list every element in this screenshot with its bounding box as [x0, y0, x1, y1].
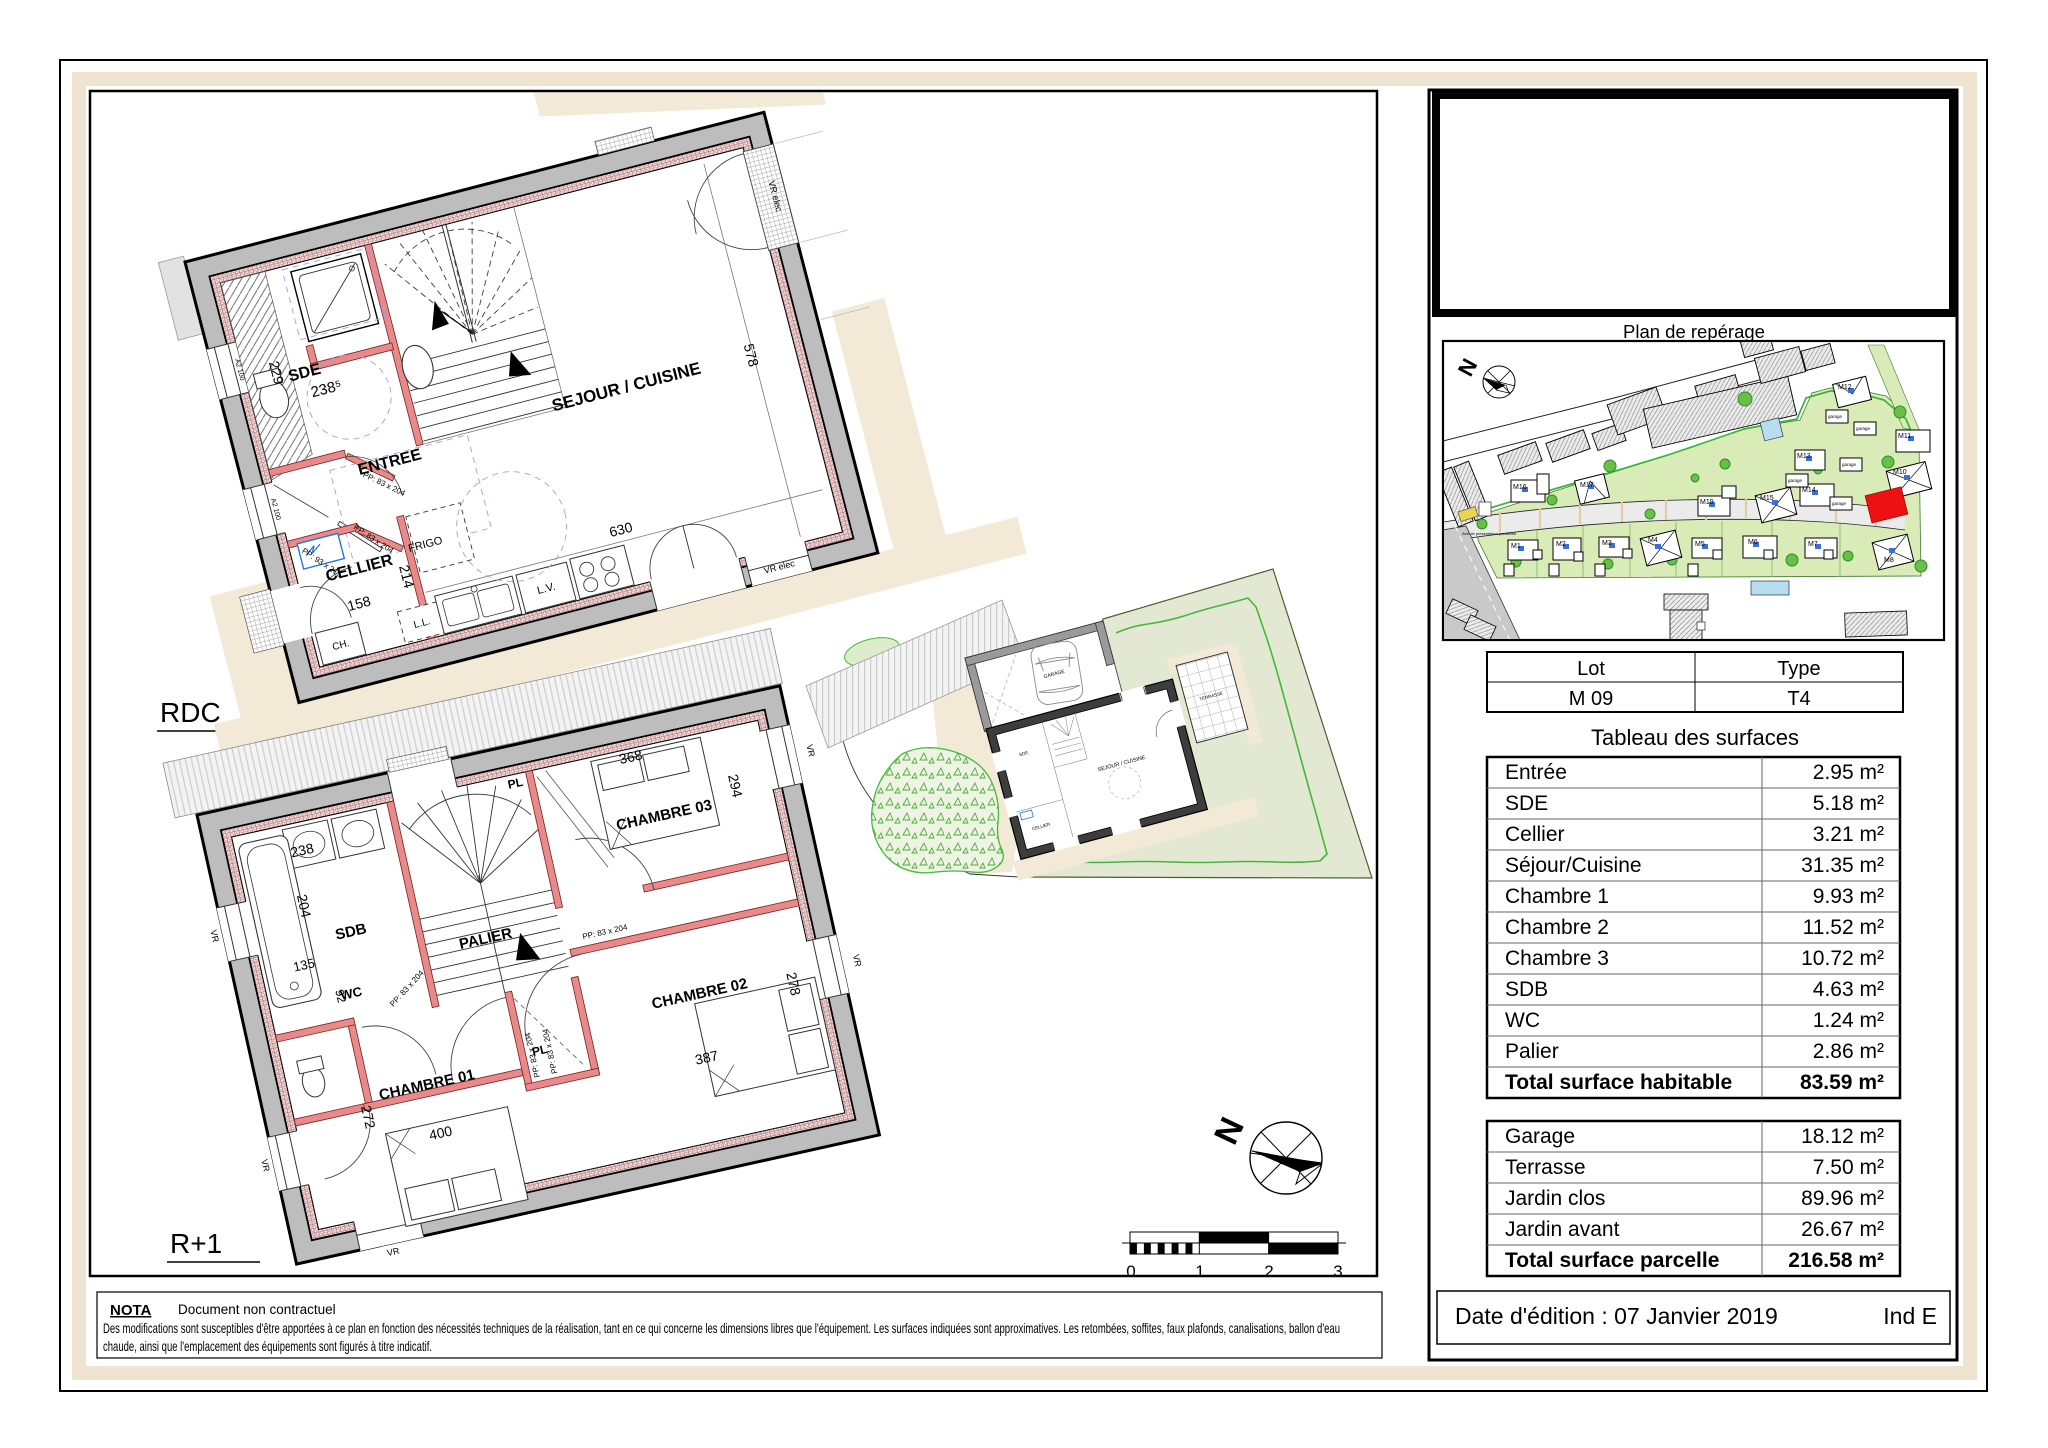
svg-text:M6: M6 [1748, 539, 1758, 546]
svg-text:M 09: M 09 [1569, 688, 1613, 710]
svg-text:garage: garage [1788, 478, 1803, 483]
svg-text:0: 0 [1126, 1262, 1135, 1281]
svg-text:2.86 m²: 2.86 m² [1813, 1040, 1884, 1063]
svg-text:M17: M17 [1580, 482, 1594, 489]
svg-text:1: 1 [1195, 1262, 1204, 1281]
svg-text:7.50 m²: 7.50 m² [1813, 1156, 1884, 1179]
svg-text:4.63 m²: 4.63 m² [1813, 978, 1884, 1001]
svg-text:SDB: SDB [1505, 978, 1548, 1001]
svg-text:M4: M4 [1648, 537, 1658, 544]
svg-text:18.12 m²: 18.12 m² [1801, 1125, 1884, 1148]
svg-text:M16: M16 [1513, 484, 1527, 491]
svg-text:1.24 m²: 1.24 m² [1813, 1009, 1884, 1032]
svg-text:T4: T4 [1787, 688, 1810, 710]
svg-text:M13: M13 [1797, 453, 1811, 460]
svg-text:garage: garage [1832, 501, 1847, 506]
svg-text:Des modifications sont suscept: Des modifications sont susceptibles d'êt… [103, 1321, 1340, 1336]
svg-text:M1: M1 [1511, 543, 1521, 550]
svg-text:Terrasse: Terrasse [1505, 1156, 1586, 1179]
svg-text:Garage: Garage [1505, 1125, 1575, 1148]
svg-text:garage: garage [1842, 462, 1857, 467]
svg-text:9.93 m²: 9.93 m² [1813, 885, 1884, 908]
svg-text:SDE: SDE [1505, 792, 1548, 815]
svg-text:Date d'édition : 07 Janvier 20: Date d'édition : 07 Janvier 2019 [1455, 1303, 1778, 1329]
svg-text:Document non contractuel: Document non contractuel [178, 1302, 336, 1317]
svg-text:3: 3 [1333, 1262, 1342, 1281]
svg-text:NOTA: NOTA [110, 1302, 152, 1319]
svg-text:M11: M11 [1898, 433, 1911, 440]
svg-text:chaude, ainsi que l'emplacemen: chaude, ainsi que l'emplacement des équi… [103, 1339, 432, 1354]
svg-text:M7: M7 [1808, 541, 1818, 548]
svg-text:216.58 m²: 216.58 m² [1788, 1249, 1884, 1272]
svg-text:M8: M8 [1884, 557, 1894, 564]
svg-text:RDC: RDC [160, 697, 221, 728]
svg-text:Entrée: Entrée [1505, 761, 1567, 784]
svg-text:Plan de repérage: Plan de repérage [1623, 321, 1765, 342]
svg-text:3.21 m²: 3.21 m² [1813, 823, 1884, 846]
svg-text:Total surface habitable: Total surface habitable [1505, 1071, 1732, 1094]
svg-text:Aire de présentation poubelles: Aire de présentation poubelles [1462, 531, 1516, 536]
svg-text:Jardin avant: Jardin avant [1505, 1218, 1620, 1241]
svg-text:83.59 m²: 83.59 m² [1800, 1071, 1884, 1094]
svg-text:M12: M12 [1838, 384, 1852, 391]
svg-text:M14: M14 [1802, 487, 1816, 494]
svg-text:Total surface parcelle: Total surface parcelle [1505, 1249, 1719, 1272]
svg-text:31.35 m²: 31.35 m² [1801, 854, 1884, 877]
svg-text:M2: M2 [1556, 541, 1566, 548]
svg-text:2.95 m²: 2.95 m² [1813, 761, 1884, 784]
svg-text:Séjour/Cuisine: Séjour/Cuisine [1505, 854, 1642, 877]
svg-text:M3: M3 [1602, 540, 1612, 547]
svg-text:garage: garage [1828, 414, 1843, 419]
svg-text:R+1: R+1 [170, 1228, 222, 1259]
svg-text:89.96 m²: 89.96 m² [1801, 1187, 1884, 1210]
svg-text:Ind E: Ind E [1883, 1303, 1937, 1329]
svg-text:WC: WC [1505, 1009, 1540, 1032]
svg-text:2: 2 [1264, 1262, 1273, 1281]
svg-text:5.18 m²: 5.18 m² [1813, 792, 1884, 815]
svg-text:Tableau des surfaces: Tableau des surfaces [1591, 725, 1799, 750]
svg-text:garage: garage [1856, 426, 1871, 431]
svg-text:Type: Type [1777, 658, 1820, 680]
svg-text:10.72 m²: 10.72 m² [1801, 947, 1884, 970]
svg-text:Chambre 3: Chambre 3 [1505, 947, 1609, 970]
svg-text:Chambre 2: Chambre 2 [1505, 916, 1609, 939]
svg-text:26.67 m²: 26.67 m² [1801, 1218, 1884, 1241]
svg-text:M19: M19 [1700, 499, 1714, 506]
svg-text:M15: M15 [1760, 495, 1774, 502]
svg-text:Jardin clos: Jardin clos [1505, 1187, 1605, 1210]
svg-text:Chambre 1: Chambre 1 [1505, 885, 1609, 908]
svg-text:M10: M10 [1893, 469, 1907, 476]
svg-text:Cellier: Cellier [1505, 823, 1565, 846]
svg-text:Lot: Lot [1577, 658, 1605, 680]
svg-text:Palier: Palier [1505, 1040, 1559, 1063]
svg-text:11.52 m²: 11.52 m² [1803, 916, 1884, 939]
svg-text:M5: M5 [1695, 541, 1705, 548]
